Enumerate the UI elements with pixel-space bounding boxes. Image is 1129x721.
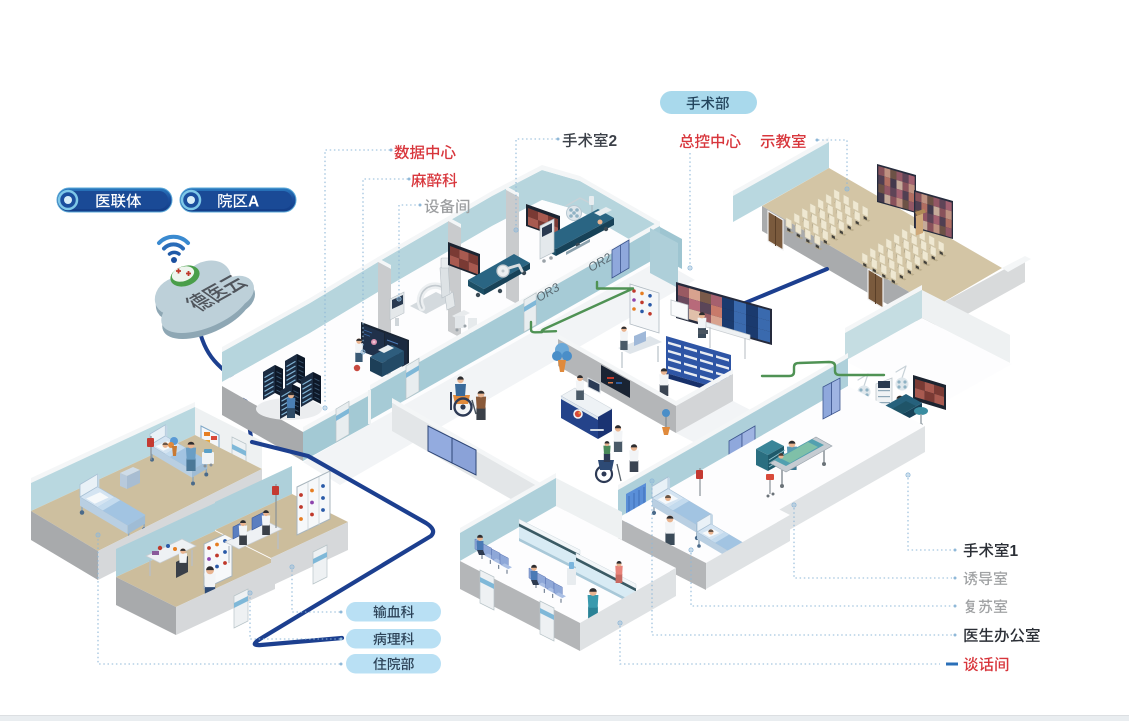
svg-text:A: A: [248, 194, 259, 211]
svg-text:1: 1: [1010, 543, 1019, 560]
svg-text:2: 2: [609, 133, 618, 150]
